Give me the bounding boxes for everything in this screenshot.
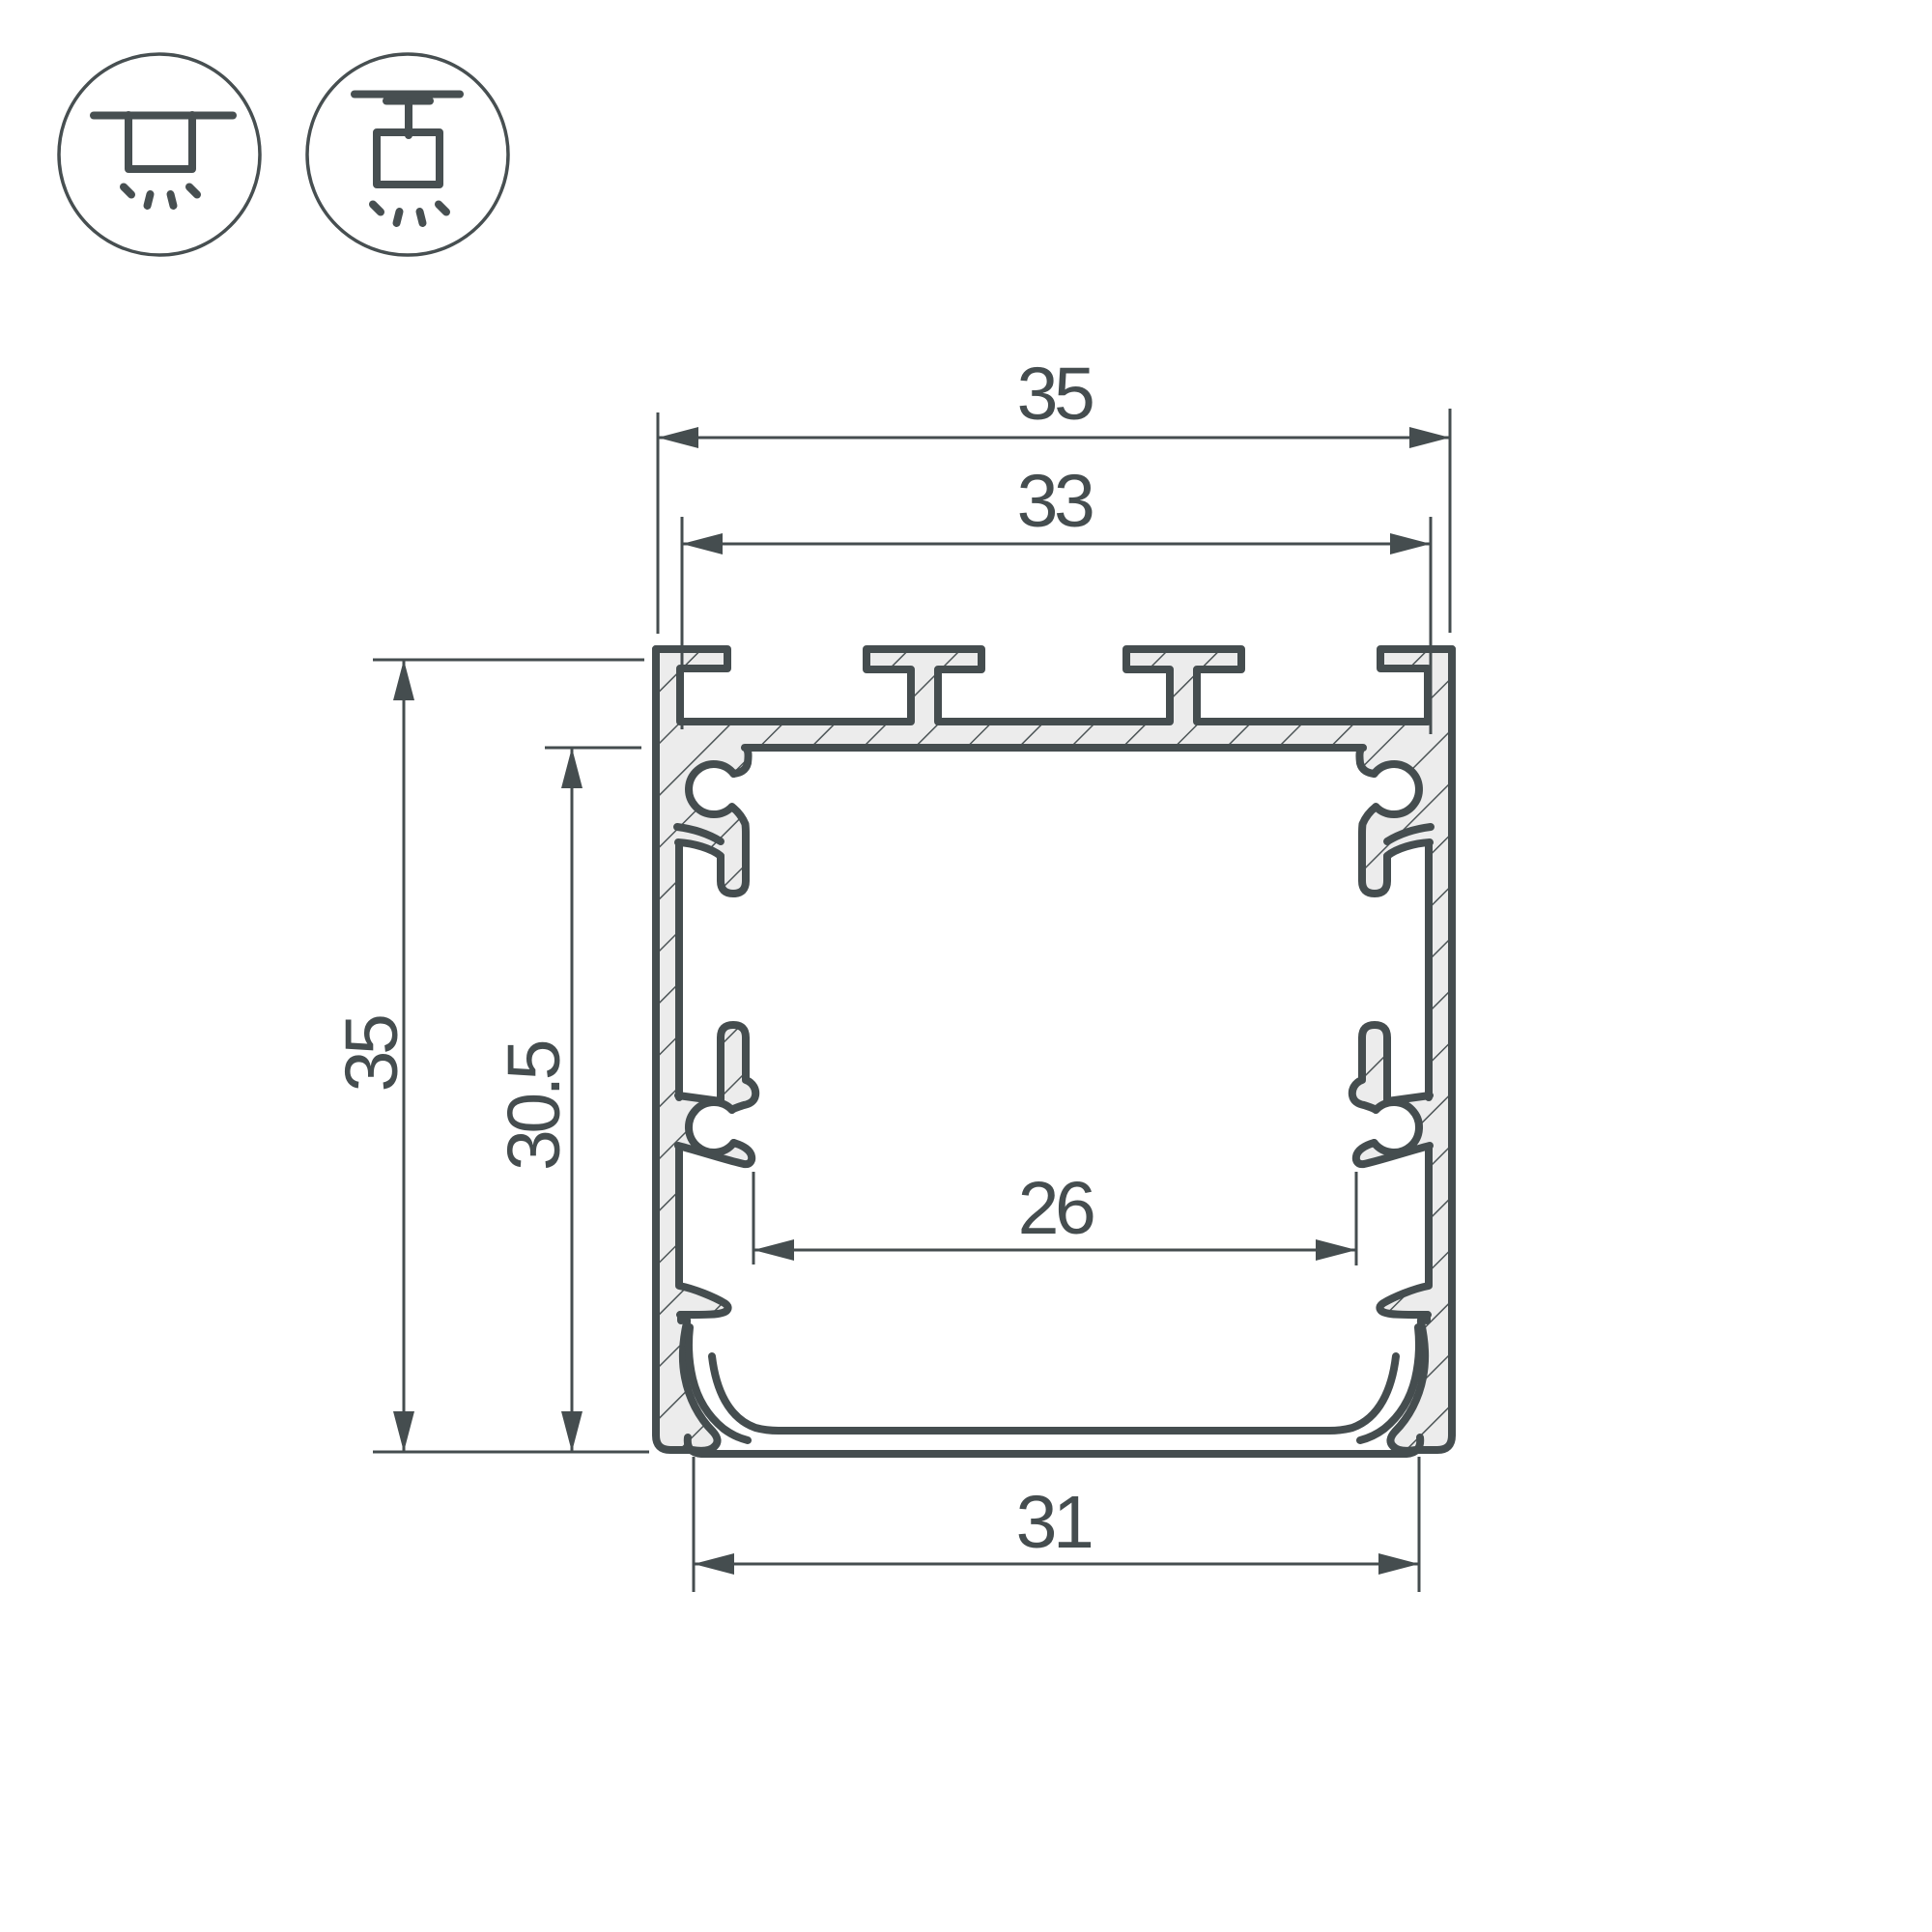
svg-text:31: 31 <box>1016 1481 1092 1564</box>
svg-text:35: 35 <box>1017 353 1093 436</box>
svg-text:30.5: 30.5 <box>493 1041 576 1171</box>
svg-text:26: 26 <box>1018 1167 1094 1250</box>
svg-text:33: 33 <box>1017 460 1093 543</box>
svg-text:35: 35 <box>330 1016 413 1092</box>
